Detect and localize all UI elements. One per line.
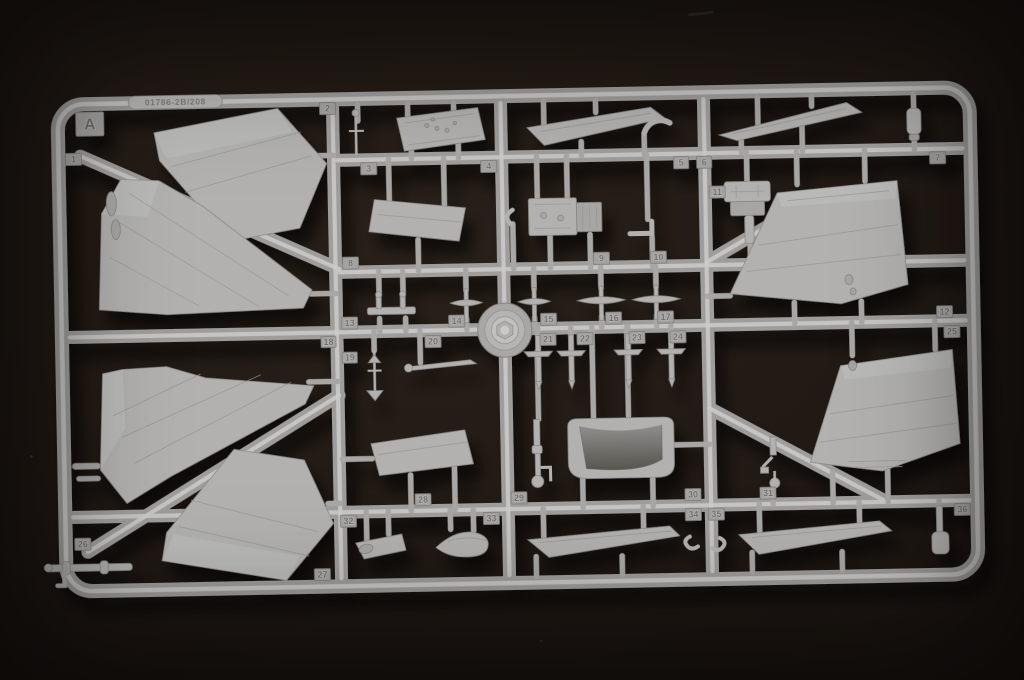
svg-text:25: 25	[947, 326, 957, 336]
svg-text:31: 31	[763, 488, 773, 498]
dust-speck	[540, 640, 542, 642]
part-tag-14: 14	[449, 315, 465, 327]
svg-text:17: 17	[660, 312, 670, 322]
part-landing-gear-strut	[531, 419, 551, 487]
part-tag-33: 33	[483, 512, 499, 524]
sprue: 01786-2B/208 A 1 2 3 4 5 6 7 8 9 10 11 1…	[0, 0, 1024, 680]
svg-text:26: 26	[78, 539, 88, 549]
part-tag-32: 32	[340, 515, 356, 527]
mold-stamp-text: 01786-2B/208	[145, 96, 206, 107]
part-tag-35: 35	[708, 508, 724, 520]
part-tag-28: 28	[415, 494, 431, 506]
part-lower-access-panel	[371, 430, 474, 476]
svg-text:23: 23	[632, 333, 642, 343]
svg-text:1: 1	[71, 154, 76, 164]
svg-text:15: 15	[544, 314, 554, 324]
section-letter-tag: A	[76, 112, 104, 137]
part-elbow-pipe	[630, 221, 652, 233]
svg-text:20: 20	[428, 336, 438, 346]
part-access-panel	[368, 198, 466, 243]
part-tag-8: 8	[342, 257, 358, 269]
part-rail-with-posts	[367, 291, 415, 315]
svg-text:5: 5	[679, 158, 684, 168]
svg-text:32: 32	[343, 516, 353, 526]
part-nose-cone	[436, 532, 489, 558]
part-tag-23: 23	[629, 331, 645, 343]
svg-text:4: 4	[486, 161, 491, 171]
part-intake-duct	[568, 417, 675, 479]
svg-text:10: 10	[653, 252, 663, 262]
part-refueling-probe	[44, 560, 132, 586]
section-letter: A	[84, 116, 96, 133]
part-tag-18: 18	[321, 336, 336, 347]
part-tag-17: 17	[657, 311, 673, 323]
part-cockpit-tub	[528, 197, 602, 235]
part-tag-20: 20	[425, 335, 441, 347]
part-tag-6: 6	[697, 156, 712, 168]
part-tag-27: 27	[314, 569, 330, 581]
svg-text:34: 34	[688, 509, 698, 519]
svg-text:9: 9	[599, 253, 604, 263]
part-wing-slat-top-right	[719, 102, 863, 141]
svg-text:16: 16	[608, 313, 618, 323]
part-hook-clips	[685, 536, 724, 551]
mold-stamp: 01786-2B/208	[128, 95, 222, 110]
part-tag-2: 2	[319, 102, 335, 114]
svg-text:13: 13	[345, 318, 355, 328]
dust-speck	[30, 455, 33, 458]
part-tag-29: 29	[511, 492, 527, 504]
svg-text:14: 14	[452, 316, 462, 326]
part-wheel-hub-disc	[477, 303, 532, 358]
svg-text:36: 36	[957, 504, 967, 514]
svg-text:35: 35	[711, 509, 721, 519]
svg-text:3: 3	[366, 164, 371, 174]
part-tag-5: 5	[674, 157, 689, 169]
part-tag-9: 9	[593, 252, 609, 264]
part-tag-24: 24	[670, 331, 686, 343]
part-tag-25: 25	[944, 325, 960, 337]
part-tag-13: 13	[342, 317, 358, 329]
svg-text:24: 24	[673, 332, 683, 342]
svg-text:12: 12	[939, 307, 949, 317]
part-long-pitot	[404, 360, 476, 372]
part-pitot-probe	[349, 109, 365, 155]
photo-background: 01786-2B/208 A 1 2 3 4 5 6 7 8 9 10 11 1…	[0, 0, 1024, 680]
svg-text:22: 22	[580, 334, 590, 344]
svg-text:28: 28	[418, 495, 428, 505]
part-tag-19: 19	[342, 352, 357, 363]
svg-text:8: 8	[348, 258, 353, 268]
part-tag-10: 10	[650, 251, 666, 263]
part-tag-15: 15	[540, 313, 556, 325]
part-tag-3: 3	[361, 163, 377, 175]
part-tag-12: 12	[936, 306, 952, 318]
part-tag-31: 31	[760, 487, 776, 499]
part-tag-22: 22	[577, 332, 593, 344]
part-tag-36: 36	[954, 503, 970, 515]
part-tag-7: 7	[929, 152, 945, 164]
part-tag-1: 1	[65, 153, 81, 165]
part-dart-missile	[366, 350, 383, 400]
svg-text:33: 33	[486, 513, 496, 523]
svg-text:19: 19	[345, 353, 355, 363]
part-hook-clip	[507, 210, 513, 224]
part-tag-34: 34	[685, 508, 701, 520]
part-tag-26: 26	[75, 538, 91, 550]
part-tag-11: 11	[709, 186, 725, 198]
part-tag-4: 4	[481, 160, 497, 172]
svg-text:29: 29	[514, 493, 524, 503]
svg-text:6: 6	[702, 157, 707, 167]
part-tag-21: 21	[540, 333, 556, 345]
svg-text:21: 21	[543, 334, 553, 344]
svg-text:11: 11	[712, 187, 722, 197]
part-intake-scoop	[356, 534, 406, 559]
svg-text:2: 2	[325, 103, 330, 113]
svg-text:30: 30	[688, 489, 698, 499]
svg-text:27: 27	[317, 570, 327, 580]
part-tag-30: 30	[685, 488, 701, 500]
svg-text:7: 7	[935, 153, 940, 163]
part-tail-fin-right-lower	[808, 349, 960, 472]
svg-text:18: 18	[323, 337, 333, 347]
part-cylinder-bottom-right	[931, 506, 949, 554]
part-small-cylinder-top-right	[907, 108, 922, 140]
part-tag-16: 16	[605, 312, 621, 324]
part-leading-edge-slat-left	[528, 526, 681, 558]
